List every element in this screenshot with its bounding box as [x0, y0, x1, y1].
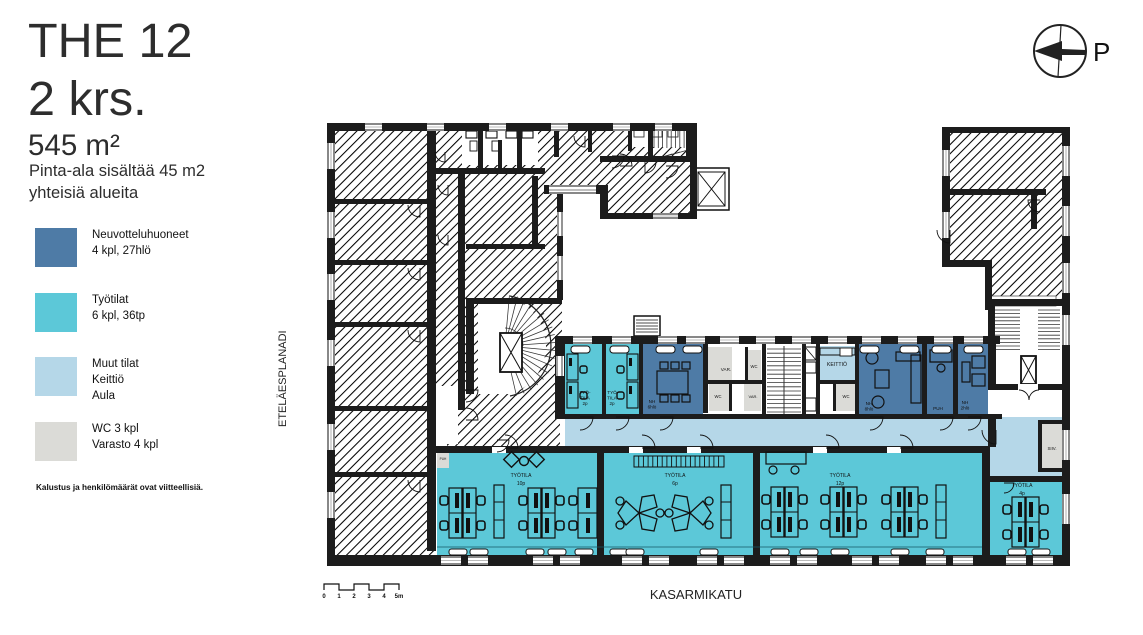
svg-text:PUH: PUH	[933, 406, 943, 411]
svg-text:PUH: PUH	[440, 457, 447, 461]
svg-text:KEITTIÖ: KEITTIÖ	[827, 361, 847, 368]
svg-text:WC: WC	[751, 364, 758, 369]
svg-text:P: P	[1093, 37, 1110, 67]
svg-text:2: 2	[352, 594, 356, 600]
svg-text:WC: WC	[715, 394, 722, 399]
svg-text:0: 0	[322, 594, 326, 600]
svg-text:SIIV.: SIIV.	[1047, 446, 1056, 451]
svg-text:4: 4	[382, 594, 386, 600]
svg-text:3: 3	[367, 594, 371, 600]
svg-text:1: 1	[337, 594, 341, 600]
svg-text:KASARMIKATU: KASARMIKATU	[650, 587, 742, 602]
svg-text:VAR.: VAR.	[748, 394, 757, 399]
svg-text:5m: 5m	[395, 594, 404, 600]
svg-text:VAR.: VAR.	[721, 367, 731, 372]
svg-text:WC: WC	[843, 394, 850, 399]
svg-text:ETELÄESPLANADI: ETELÄESPLANADI	[277, 330, 289, 427]
